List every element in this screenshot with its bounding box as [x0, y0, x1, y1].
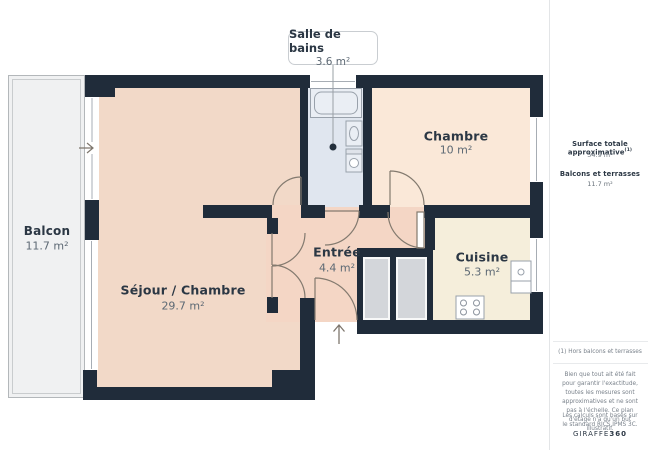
- doors: [272, 171, 424, 320]
- door-entrance: [315, 278, 357, 320]
- door-bathroom: [325, 211, 359, 245]
- bathroom-sink: [346, 121, 362, 146]
- door-chambre: [390, 171, 424, 205]
- kitchen-sink: [511, 261, 531, 293]
- stove: [456, 296, 484, 319]
- windows: [85, 75, 543, 370]
- door-leaf-cuisine: [417, 212, 424, 248]
- double-door-sejour-entree: [272, 233, 305, 298]
- door-sejour: [273, 177, 301, 205]
- floorplan-page: Balcon 11.7 m² Séjour / Chambre 29.7 m² …: [0, 0, 650, 450]
- fixtures: [311, 89, 532, 320]
- callout-title: Salle de bains: [289, 27, 377, 56]
- entrance-direction-arrow: [334, 325, 345, 344]
- callout-leader-dot: [330, 144, 337, 151]
- bathroom-callout: Salle de bains 3.6 m²: [288, 31, 378, 65]
- annotations: [79, 64, 345, 344]
- callout-area: 3.6 m²: [316, 56, 350, 69]
